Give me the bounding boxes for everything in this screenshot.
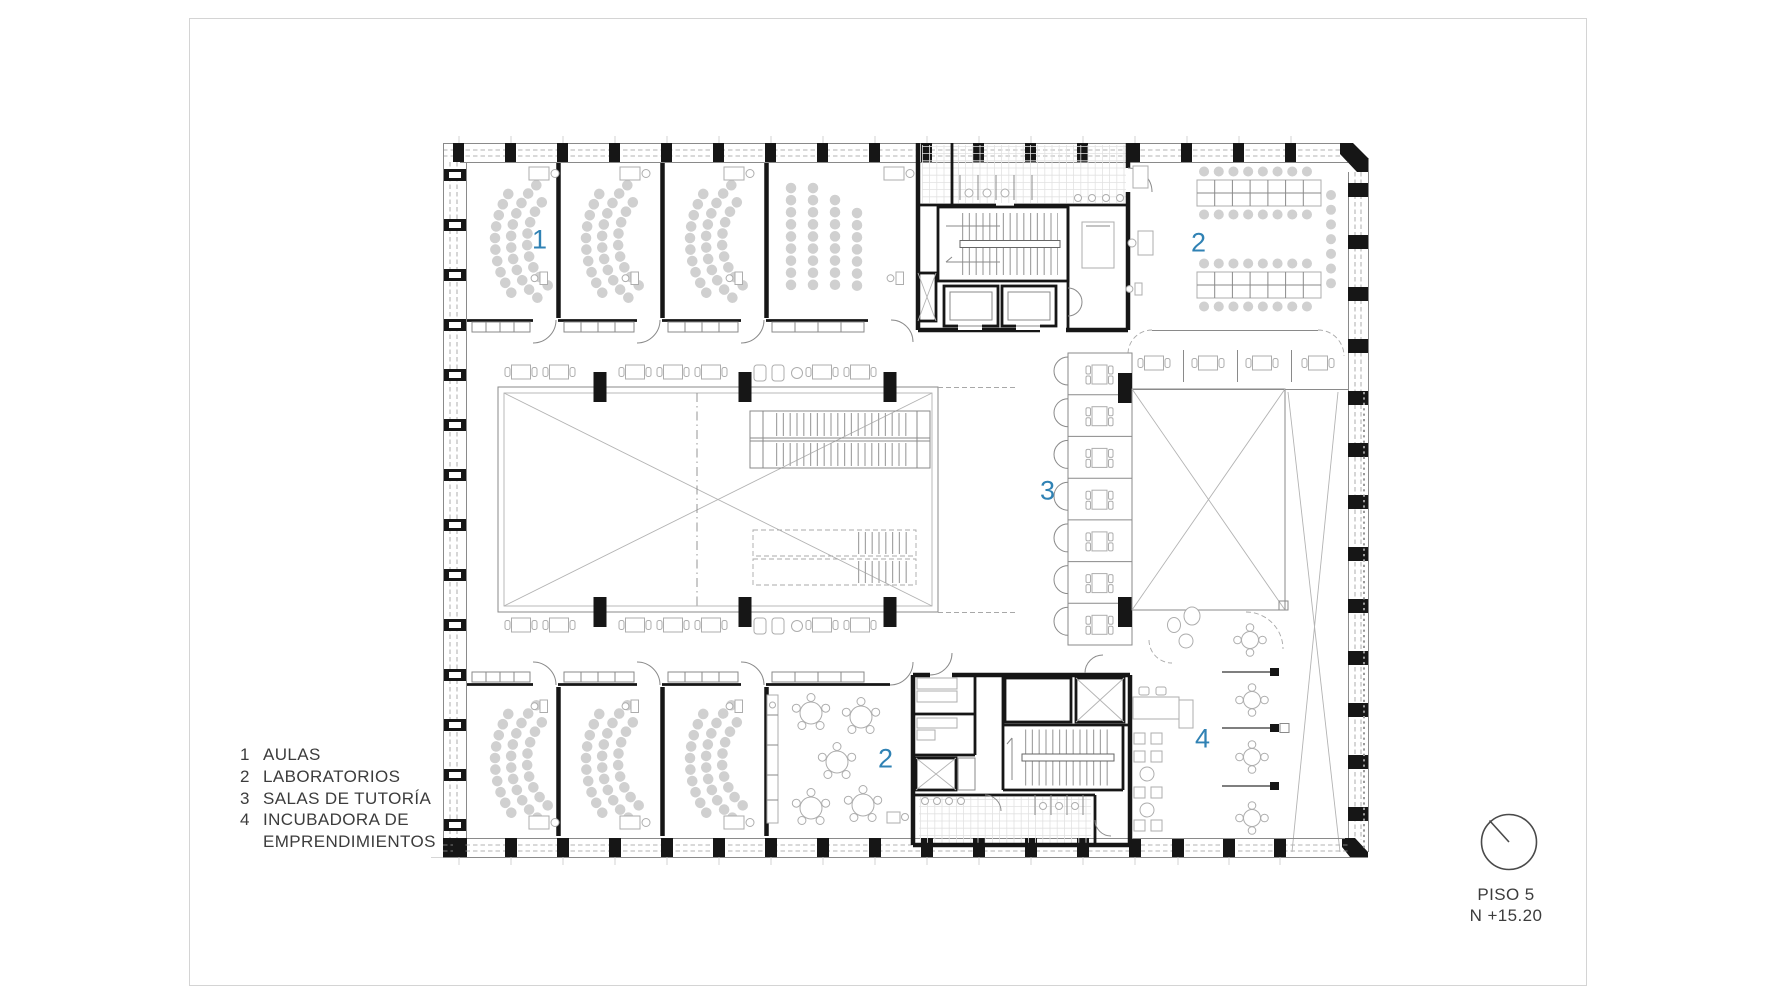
- legend-item: 3 SALAS DE TUTORÍA: [240, 788, 436, 810]
- legend-number: 1: [240, 744, 263, 766]
- title-block: PISO 5 N +15.20: [1436, 884, 1576, 926]
- corridor-cabinets-south: [472, 672, 864, 682]
- legend-label: SALAS DE TUTORÍA: [263, 788, 431, 810]
- room-label-incubadora: 4: [1195, 724, 1211, 755]
- curtain-wall-west: [443, 143, 467, 857]
- legend-label: INCUBADORA DE EMPRENDIMIENTOS: [263, 809, 436, 853]
- corridor-cabinets-north: [472, 322, 864, 332]
- room-label-lab-sur: 2: [878, 744, 894, 775]
- sheet-canvas: 1 AULAS 2 LABORATORIOS 3 SALAS DE TUTORÍ…: [0, 0, 1776, 1006]
- curtain-wall-north: [443, 136, 1368, 172]
- legend-item: 2 LABORATORIOS: [240, 766, 436, 788]
- core-south: [913, 653, 1130, 845]
- legend: 1 AULAS 2 LABORATORIOS 3 SALAS DE TUTORÍ…: [240, 744, 436, 853]
- atrium-void: [498, 365, 1016, 634]
- room-label-tutoria: 3: [1040, 476, 1056, 507]
- floor-plan-drawing: [0, 0, 1776, 1006]
- legend-label: AULAS: [263, 744, 321, 766]
- floor-title: PISO 5: [1436, 884, 1576, 905]
- tutoring-rooms: [1054, 353, 1132, 645]
- room-label-lab-norte: 2: [1191, 228, 1207, 259]
- north-needle: [1490, 821, 1510, 843]
- laboratory-north: [1126, 166, 1344, 356]
- core-north: [918, 143, 1152, 330]
- north-indicator: [1482, 815, 1537, 870]
- legend-number: 3: [240, 788, 263, 810]
- room-label-aulas: 1: [532, 225, 548, 256]
- east-void: [1132, 350, 1364, 852]
- legend-label: LABORATORIOS: [263, 766, 400, 788]
- curtain-wall-south: [431, 838, 1368, 865]
- classrooms-south: [467, 662, 913, 836]
- level-label: N +15.20: [1436, 905, 1576, 926]
- legend-item: 4 INCUBADORA DE EMPRENDIMIENTOS: [240, 809, 436, 853]
- legend-number: 4: [240, 809, 263, 853]
- legend-number: 2: [240, 766, 263, 788]
- legend-item: 1 AULAS: [240, 744, 436, 766]
